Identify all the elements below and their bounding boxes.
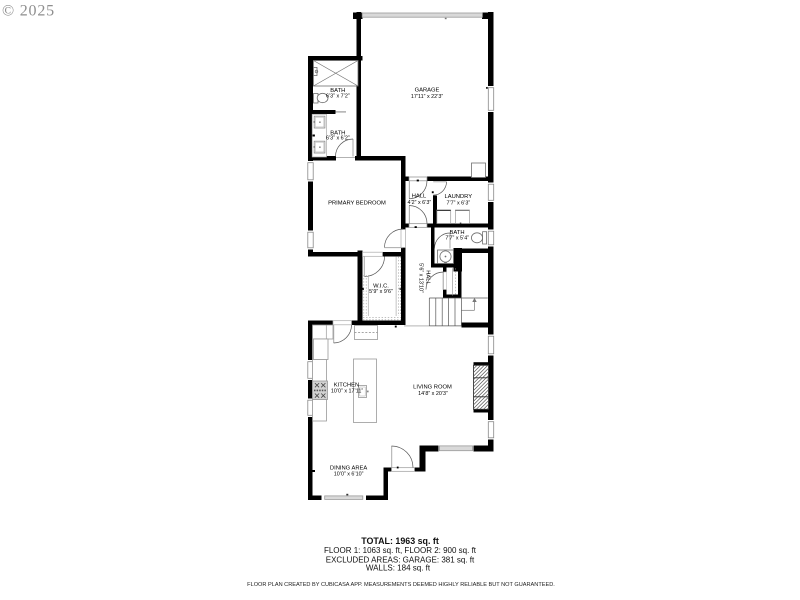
svg-text:14’8” x 20’3”: 14’8” x 20’3” bbox=[418, 391, 448, 397]
svg-text:10’0” x 6’10”: 10’0” x 6’10” bbox=[334, 471, 364, 477]
svg-text:PRIMARY BEDROOM: PRIMARY BEDROOM bbox=[328, 201, 386, 207]
svg-text:HALL: HALL bbox=[425, 270, 431, 285]
svg-text:7’7” x 6’3”: 7’7” x 6’3” bbox=[446, 201, 470, 207]
svg-text:6’3” x 7’2”: 6’3” x 7’2” bbox=[326, 94, 350, 100]
svg-text:6’3” x 6’2”: 6’3” x 6’2” bbox=[326, 136, 350, 142]
svg-text:LIVING ROOM: LIVING ROOM bbox=[413, 384, 452, 390]
svg-text:4’2” x 6’3”: 4’2” x 6’3” bbox=[407, 200, 431, 206]
svg-text:5’9” x 9’6”: 5’9” x 9’6” bbox=[369, 289, 393, 295]
svg-text:10’0” x 17’11”: 10’0” x 17’11” bbox=[331, 388, 363, 394]
svg-text:5’6” x 13’10”: 5’6” x 13’10” bbox=[418, 263, 424, 293]
svg-text:LAUNDRY: LAUNDRY bbox=[444, 194, 472, 200]
svg-text:FLOOR PLAN CREATED BY CUBICASA: FLOOR PLAN CREATED BY CUBICASA APP. MEAS… bbox=[247, 582, 555, 588]
svg-text:FLOOR 1: 1063 sq. ft, FLOOR 2:: FLOOR 1: 1063 sq. ft, FLOOR 2: 900 sq. f… bbox=[324, 546, 477, 555]
svg-text:7’7” x 5’4”: 7’7” x 5’4” bbox=[445, 236, 469, 242]
svg-text:17’11” x 22’3”: 17’11” x 22’3” bbox=[411, 94, 443, 100]
svg-text:HALL: HALL bbox=[412, 194, 427, 200]
svg-text:WALLS: 184 sq. ft: WALLS: 184 sq. ft bbox=[366, 564, 431, 573]
svg-text:GARAGE: GARAGE bbox=[415, 88, 440, 94]
svg-text:DINING AREA: DINING AREA bbox=[330, 465, 367, 471]
svg-text:TOTAL: 1963 sq. ft: TOTAL: 1963 sq. ft bbox=[361, 536, 439, 546]
svg-text:© 2025: © 2025 bbox=[2, 2, 55, 19]
